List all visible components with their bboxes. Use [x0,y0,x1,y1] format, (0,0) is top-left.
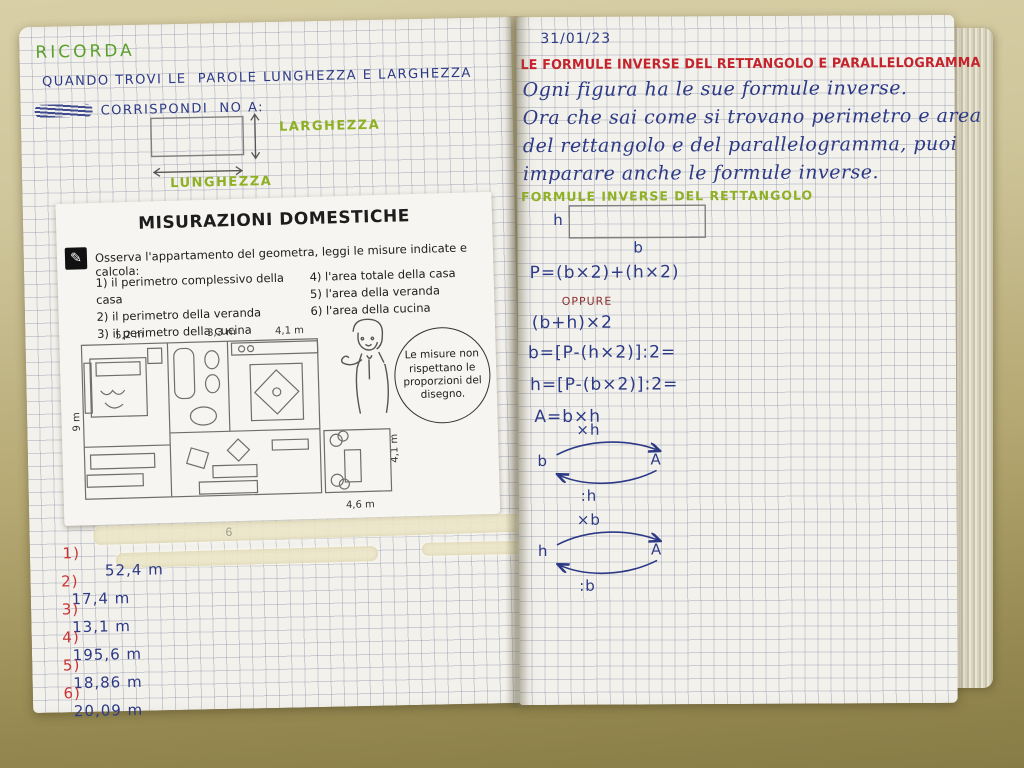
to-A2: A [651,540,662,558]
dim-top-2: 3,3 m [207,327,236,339]
op-div-b: :b [579,577,596,595]
answer-value: 20,09 m [74,701,144,720]
perimeter-formula: P=(b×2)+(h×2) [529,262,679,283]
right-notebook-page: 31/01/23 LE FORMULE INVERSE DEL RETTANGO… [516,15,958,705]
note-line-1: QUANDO TROVI LE PAROLE LUNGHEZZA E LARGH… [42,66,472,90]
oppure-word: OPPURE [562,295,613,308]
op-div-h: :h [581,487,598,505]
worksheet-title: MISURAZIONI DOMESTICHE [56,204,492,236]
base-inverse-formula: b=[P-(h×2)]:2= [528,342,676,363]
from-h: h [538,542,549,560]
left-notebook-page: RICORDA QUANDO TROVI LE PAROLE LUNGHEZZA… [19,17,525,713]
from-b: b [537,452,548,470]
dim-bottom: 4,6 m [346,499,375,511]
dim-left: 9 m [71,412,83,432]
alt-perimeter-formula: (b+h)×2 [532,313,613,333]
correction-tape [422,541,534,556]
pencil-icon: ✎ [65,247,88,270]
h-label: h [553,211,564,229]
to-A: A [650,450,661,468]
paragraph-line: imparare anche le formule inverse. [523,161,879,185]
lesson-title: LE FORMULE INVERSE DEL RETTANGOLO E PARA… [520,55,980,73]
b-label: b [633,238,644,256]
date: 31/01/23 [540,31,611,47]
notebook-page-edges [951,28,993,688]
pencil-icon-glyph: ✎ [70,250,82,266]
larghezza-label: LARGHEZZA [279,118,380,135]
pencil-mark: 6 [225,525,232,539]
speech-bubble: Le misure non rispettano le proporzioni … [393,326,492,425]
paragraph-line: del rettangolo e del parallelogramma, pu… [523,133,957,157]
height-inverse-formula: h=[P-(b×2)]:2= [530,374,678,395]
speech-bubble-text: Le misure non rispettano le proporzioni … [401,347,484,403]
op-times-b: ×b [577,511,601,529]
dim-top-1: 5,2 m [115,330,144,342]
rectangle-hb-sketch [547,202,727,243]
glued-worksheet: MISURAZIONI DOMESTICHE ✎ Osserva l'appar… [55,192,500,526]
paragraph-line: Ogni figura ha le sue formule inverse. [523,77,908,101]
lunghezza-label: LUNGHEZZA [170,174,272,191]
inverse-arrow-diagrams: ×h b A :h ×b h A :b [532,420,703,601]
task-list-right: 4) l'area totale della casa 5) l'area de… [309,264,490,320]
paragraph-line: Ora che sai come si trovano perimetro e … [523,105,982,129]
dim-top-3: 4,1 m [275,325,304,337]
op-times-h: ×h [576,421,600,439]
answer-row: 6) 20,09 m [42,666,143,738]
ricorda-heading: RICORDA [35,41,135,63]
scribbled-out-word [35,104,93,118]
surveyor-character [337,315,398,419]
answer-number: 6) [63,684,81,702]
